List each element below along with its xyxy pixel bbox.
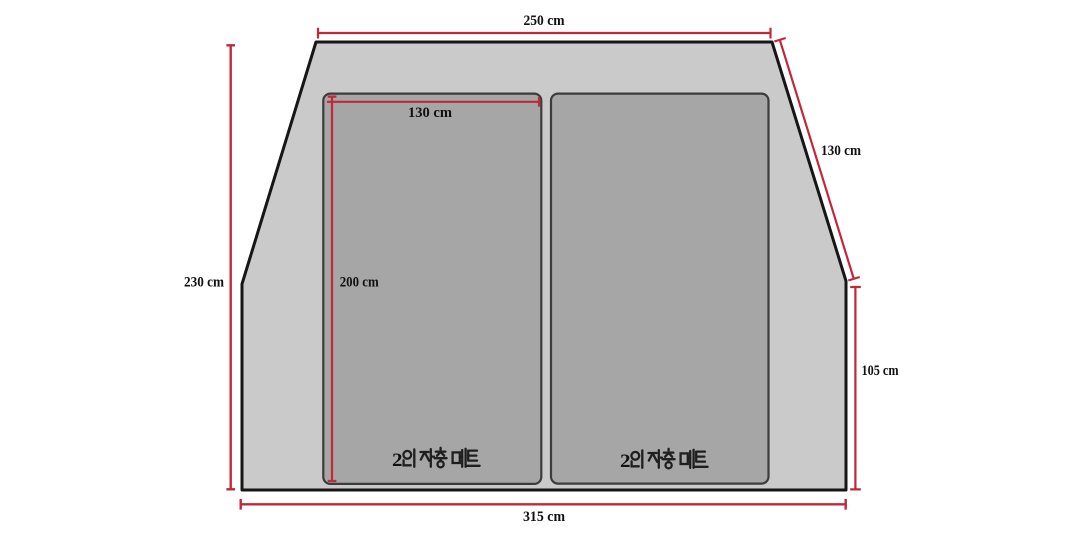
svg-text:250 cm: 250 cm <box>524 13 565 29</box>
svg-text:105 cm: 105 cm <box>862 363 899 379</box>
svg-text:315 cm: 315 cm <box>523 509 565 525</box>
svg-text:200 cm: 200 cm <box>340 274 379 290</box>
svg-text:130 cm: 130 cm <box>821 143 861 159</box>
svg-text:130 cm: 130 cm <box>408 105 452 121</box>
svg-text:230 cm: 230 cm <box>184 274 224 290</box>
